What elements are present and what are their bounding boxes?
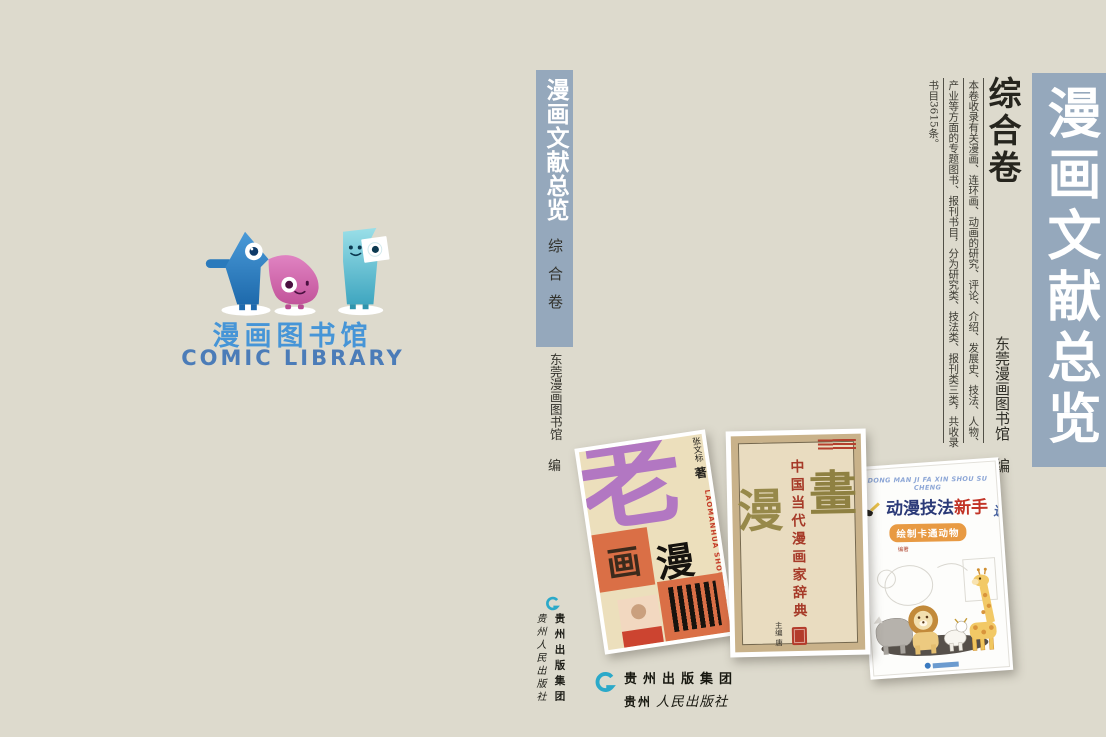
book3-animal-illustration xyxy=(867,547,1008,664)
intro-rule-1 xyxy=(983,78,984,443)
book3-title-main: 动漫技法 xyxy=(886,498,954,519)
front-publisher-script: 人民出版社 xyxy=(656,694,729,710)
intro-column-3: 书目3615条。 xyxy=(923,80,943,152)
front-editor-name: 东莞漫画图书馆 xyxy=(993,336,1011,441)
book3-header: DONG MAN JI FA XIN SHOU SU CHENG 动漫技法新手 … xyxy=(862,475,993,554)
book3-publisher-mark xyxy=(924,661,958,669)
spine-volume-label: 综合卷 xyxy=(547,238,562,322)
book3-publisher-bar xyxy=(932,661,958,668)
spine-title-bar: 漫画文献总览 综合卷 xyxy=(536,70,573,347)
book3-banner: 绘制卡通动物 xyxy=(889,523,966,542)
book-cover-dongman-jifa: DONG MAN JI FA XIN SHOU SU CHENG 动漫技法新手 … xyxy=(856,457,1014,679)
front-publisher-prefix: 贵州 xyxy=(624,695,652,709)
teal-flag-mascot-icon xyxy=(343,228,390,309)
intro-column-2-text: 产业等方面的专题图书、报刊书目，分为研究类、技法类、报刊类三类，共收录 xyxy=(948,80,959,448)
front-editor: 东莞漫画图书馆 编 xyxy=(994,336,1009,473)
pink-wave-mascot-icon xyxy=(269,255,319,309)
intro-column-3-text: 书目3615条。 xyxy=(928,80,939,149)
book3-pinyin: DONG MAN JI FA XIN SHOU SU CHENG xyxy=(862,475,992,493)
back-logo-title-en: COMIC LIBRARY xyxy=(158,346,428,370)
book1-collage-block-a: 画 xyxy=(591,527,655,593)
front-publisher-block: 贵州出版集团 贵州 人民出版社 xyxy=(594,668,738,710)
book2-red-seal xyxy=(792,627,807,645)
book3-publisher-dot xyxy=(924,663,930,669)
intro-column-1-text: 本卷收录有关漫画、连环画、动画的研究、评论、介绍、发展史、技法、人物、 xyxy=(968,80,979,448)
front-volume-label: 综合卷 xyxy=(986,76,1019,187)
book1-author-role: 著 xyxy=(693,466,707,480)
book2-title: 中国当代漫画家辞典 xyxy=(789,459,806,621)
intro-column-2: 产业等方面的专题图书、报刊书目，分为研究类、技法类、报刊类三类，共收录 xyxy=(943,80,963,451)
front-series-title: 漫画文献总览 xyxy=(1042,85,1096,451)
book1-big-char: 老 xyxy=(579,434,689,540)
book1-photo-face xyxy=(630,603,647,620)
spine-series-title: 漫画文献总览 xyxy=(543,78,566,222)
book1-collage-char-a: 画 xyxy=(603,533,644,586)
book3-title: 动漫技法新手 速成 xyxy=(863,493,993,520)
intro-column-1: 本卷收录有关漫画、连环画、动画的研究、评论、介绍、发展史、技法、人物、 xyxy=(963,80,983,451)
spine-publisher-group: 贵州出版集团 xyxy=(554,613,565,706)
blue-pointer-mascot-icon xyxy=(206,232,269,310)
book3-title-tail: 速成 xyxy=(993,500,1010,523)
front-guizhou-publisher-logo-icon xyxy=(594,671,616,693)
spine-editor: 东莞漫画图书馆 xyxy=(536,353,573,444)
spine-editor-role: 编 xyxy=(536,455,573,474)
book1-author: 张文标 著 xyxy=(689,436,707,480)
front-publisher-group: 贵州出版集团 xyxy=(624,668,738,687)
comic-library-mascots-icon xyxy=(198,222,394,320)
book1-collage-block-b xyxy=(657,572,731,641)
front-title-bar: 漫画文献总览 xyxy=(1032,73,1106,467)
book-cover-manhuajia-cidian: 漫 畫 中国当代漫画家辞典 主编 唐 xyxy=(726,429,871,658)
spine-editor-name: 东莞漫画图书馆 xyxy=(548,353,561,441)
book3-title-accent: 新手 xyxy=(954,498,988,519)
spine-publisher-name: 贵州人民出版社 xyxy=(534,613,544,704)
book1-stripes-decor xyxy=(668,581,722,633)
book1-author-name: 张文标 xyxy=(690,436,704,463)
front-publisher-name: 贵州 人民出版社 xyxy=(624,690,738,710)
book-cover-spread: 漫画图书馆 COMIC LIBRARY 漫画文献总览 综合卷 东莞漫画图书馆 编… xyxy=(0,0,1106,737)
book2-seal-char-left: 漫 xyxy=(737,487,784,534)
book-cover-laomanhua: 老 张文标 著 LAOMANHUA SHOUCANG 画 漫 xyxy=(574,429,735,654)
book1-photo-inset xyxy=(617,594,664,647)
book2-corner-text-decor xyxy=(818,439,856,451)
book2-editor-line: 主编 唐 xyxy=(775,621,783,646)
book2-seal-char-right: 畫 xyxy=(808,470,857,519)
spine-guizhou-publisher-logo-icon xyxy=(545,596,560,611)
book1-photo-dress xyxy=(622,626,664,648)
